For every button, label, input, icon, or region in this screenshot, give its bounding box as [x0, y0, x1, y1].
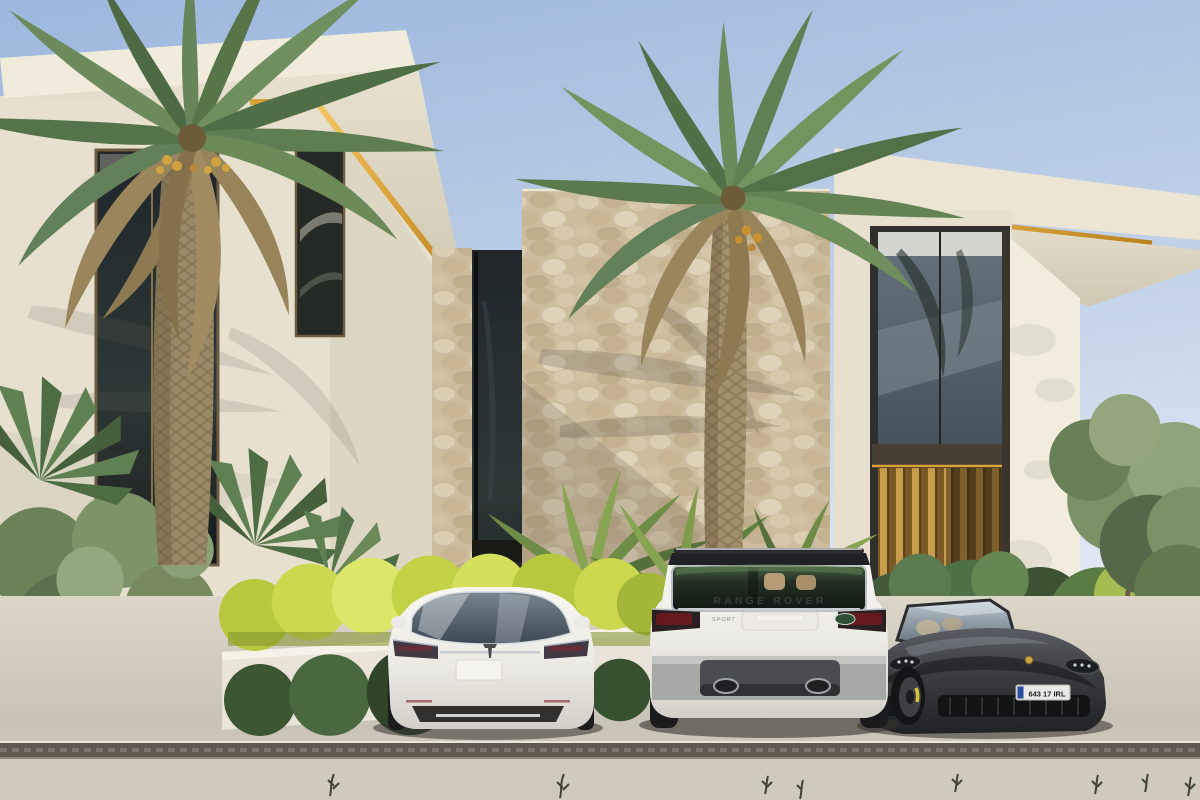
spandrel	[872, 444, 1004, 466]
rr-bumper	[652, 656, 886, 700]
rr-sport-badge: SPORT	[712, 617, 736, 623]
land-rover-badge	[835, 614, 855, 625]
rr-chrome-strip	[678, 608, 860, 611]
porsche-license-plate: 643 17 IRL	[1016, 685, 1070, 700]
rr-exhaust-left	[714, 679, 738, 693]
car-range-rover: RANGE ROVER SPORT	[639, 548, 899, 738]
rr-roof	[668, 548, 870, 565]
brake-caliper	[916, 688, 918, 702]
villa-exterior-render: 643 17 IRL RANGE ROVER	[0, 0, 1200, 800]
porsche-wheel-left	[891, 667, 925, 725]
tesla-mirror-right	[574, 616, 590, 628]
scene-canvas: 643 17 IRL RANGE ROVER	[0, 0, 1200, 800]
rr-taillight-left	[652, 609, 700, 632]
rr-tailgate-text: RANGE ROVER	[713, 595, 826, 607]
tesla-mirror-left	[391, 616, 407, 628]
rr-exhaust-right	[806, 679, 830, 693]
tesla-license-plate	[456, 660, 502, 680]
car-tesla	[373, 587, 603, 740]
tesla-rear-window	[411, 592, 571, 644]
porsche-crest	[1025, 656, 1033, 664]
porsche-plate-text: 643 17 IRL	[1028, 690, 1066, 699]
